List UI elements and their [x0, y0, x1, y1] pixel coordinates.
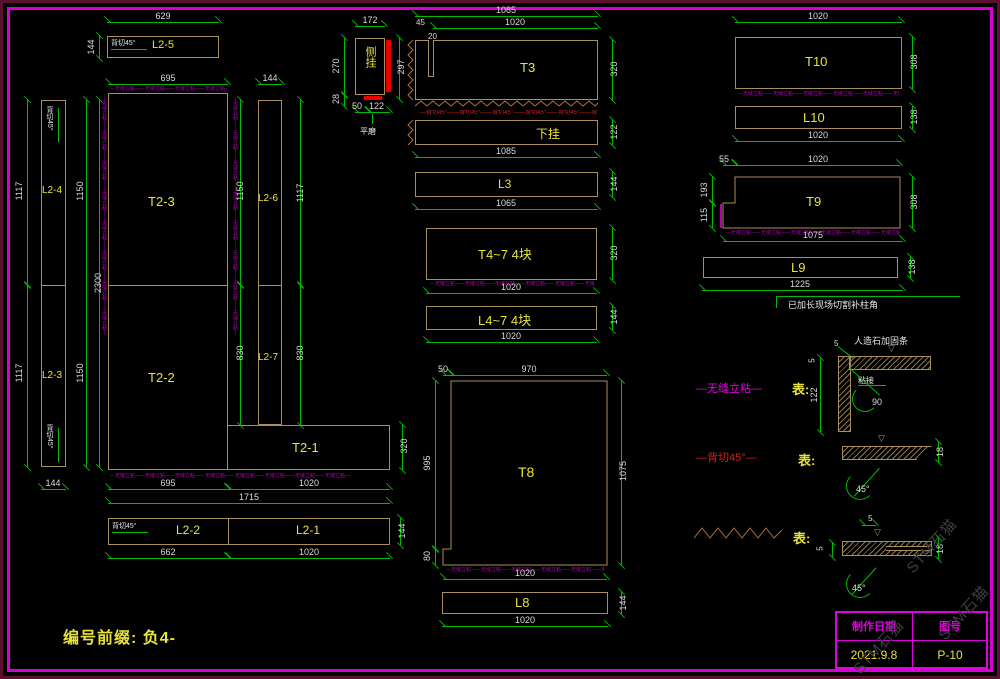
dim-28: 28: [331, 81, 341, 117]
panel-label: T4~7 4块: [478, 244, 532, 263]
dim-308: 308: [909, 44, 919, 80]
red-highlight-bar: [364, 96, 382, 100]
dim-line: [435, 381, 436, 549]
dim-45deg: 45°: [852, 583, 866, 593]
dim-5: 5: [808, 343, 817, 379]
reinforcement-strip-note: 人造石加固条: [854, 334, 908, 347]
panel-label: L2-3: [42, 370, 62, 381]
dim-45: 45: [416, 18, 425, 27]
red-highlight-bar: [386, 40, 391, 92]
panel-split: [108, 285, 228, 286]
leader-line: [112, 532, 148, 533]
dim-629: 629: [133, 11, 193, 21]
dim-1020: 1020: [279, 547, 339, 557]
dim-line: [41, 489, 66, 490]
panel-label: T8: [518, 464, 534, 480]
panel-label: 侧挂: [362, 46, 378, 90]
dim-90: 90: [872, 397, 882, 407]
panel-label: L3: [498, 177, 511, 191]
dim-144: 144: [86, 29, 96, 65]
dim-line: [344, 38, 345, 95]
dim-1150: 1150: [75, 173, 85, 209]
dim-5: 5: [816, 531, 825, 567]
dim-662: 662: [138, 547, 198, 557]
panel-split: [41, 285, 66, 286]
dim-270: 270: [331, 48, 341, 84]
panel-l2-6-l2-7: [258, 100, 282, 425]
leader-line: [776, 296, 960, 297]
dim-830: 830: [295, 335, 305, 371]
legend-means-label: 表:: [793, 528, 810, 547]
dim-1075: 1075: [783, 230, 843, 240]
dim-line: [27, 286, 28, 467]
dim-line: [735, 22, 902, 23]
dim-5: 5: [834, 339, 838, 348]
dim-line: [344, 95, 345, 106]
panel-label: L8: [515, 595, 529, 610]
dim-115: 115: [699, 197, 709, 233]
legend-means-label: 表:: [798, 450, 815, 469]
dim-line: [108, 503, 390, 504]
panel-label: L2-1: [296, 523, 320, 537]
dim-55: 55: [719, 154, 729, 164]
dim-line: [355, 112, 368, 113]
panel-label: L2-2: [176, 523, 200, 537]
dim-line: [443, 579, 607, 580]
dim-1020: 1020: [481, 282, 541, 292]
dim-122: 122: [809, 377, 819, 413]
dim-122: 122: [369, 101, 384, 111]
dim-144: 144: [38, 478, 68, 488]
panel-l2-4-l2-3: [41, 100, 66, 467]
dim-1020: 1020: [485, 17, 545, 27]
panel-label: T9: [806, 194, 821, 209]
dim-144: 144: [255, 73, 285, 83]
dim-144: 144: [609, 166, 619, 202]
dim-line: [228, 558, 390, 559]
panel-label: T2-3: [148, 194, 175, 209]
dim-122: 122: [609, 114, 619, 150]
dim-50: 50: [438, 364, 448, 374]
dim-line: [355, 26, 385, 27]
dim-1225: 1225: [770, 279, 830, 289]
dim-line: [107, 22, 219, 23]
dim-172: 172: [350, 15, 390, 25]
panel-label: L2-6: [258, 193, 278, 204]
dim-138: 138: [909, 99, 919, 135]
backcut-note: 背切45°: [112, 521, 137, 531]
panel-label: L10: [803, 110, 825, 125]
panel-t2-3-t2-2: [108, 93, 228, 470]
seamless-edge-marking: —无缝立粘——无缝立粘——无缝立粘——无缝立粘——无缝立粘——无缝立粘——无缝立…: [110, 86, 227, 93]
leader-line: [372, 114, 373, 124]
dim-144: 144: [618, 585, 628, 621]
dim-1020: 1020: [495, 568, 555, 578]
zigzag-edge: [415, 99, 598, 108]
dim-line: [702, 290, 903, 291]
dim-1020: 1020: [481, 331, 541, 341]
panel-label: T2-2: [148, 370, 175, 385]
dim-320: 320: [399, 428, 409, 464]
dim-1715: 1715: [219, 492, 279, 502]
dim-line: [820, 358, 821, 432]
triangle-marker: ▽: [874, 528, 881, 537]
triangle-marker: ▽: [888, 344, 895, 353]
dim-45deg: 45°: [856, 484, 870, 494]
dim-138: 138: [907, 249, 917, 285]
dim-line: [735, 165, 900, 166]
dim-line: [723, 165, 735, 166]
panel-label: L2-5: [152, 39, 174, 51]
dim-695: 695: [138, 478, 198, 488]
legend-backcut-tag: —背切45°—: [696, 449, 757, 465]
zigzag-legend-line: [694, 526, 782, 541]
cad-drawing: 629 144 背切45° L2-5 1117 1117 背切45° L2-4 …: [0, 0, 1000, 679]
dim-line: [415, 209, 598, 210]
panel-label: L4~7 4块: [478, 310, 531, 329]
dim-line: [832, 543, 833, 557]
panel-split: [228, 518, 229, 545]
dim-18: 18: [935, 434, 945, 470]
panel-label: 下挂: [536, 125, 560, 142]
dim-line: [712, 177, 713, 203]
dim-line: [415, 157, 598, 158]
dim-1150: 1150: [75, 355, 85, 391]
dim-line: [433, 28, 598, 29]
dim-line: [426, 342, 597, 343]
dim-line: [735, 141, 902, 142]
panel-slot: [428, 40, 434, 77]
dim-line: [86, 100, 87, 467]
seamless-edge-line: [720, 204, 722, 228]
backcut-note: 背切45°: [44, 424, 54, 464]
panel-label: L2-7: [258, 352, 278, 363]
zigzag-edge: [406, 120, 415, 145]
dim-1117: 1117: [295, 175, 305, 211]
dim-830: 830: [235, 335, 245, 371]
dim-line: [368, 112, 390, 113]
dim-1117: 1117: [14, 355, 24, 391]
dim-line: [258, 84, 282, 85]
dim-144: 144: [397, 513, 407, 549]
backcut-note: 背切45°: [44, 106, 54, 146]
dim-1150: 1150: [235, 173, 245, 209]
cut-on-site-note: 已加长现场切割补柱角: [788, 298, 878, 311]
legend-means-label: 表:: [792, 379, 809, 398]
panel-label: L2-4: [42, 185, 62, 196]
panel-t3: [415, 40, 598, 100]
triangle-marker: ▽: [878, 434, 885, 443]
dim-50: 50: [352, 101, 362, 111]
dim-320: 320: [609, 235, 619, 271]
zigzag-edge: [406, 40, 415, 100]
leader-line: [58, 428, 59, 462]
leader-line: [111, 49, 147, 50]
dim-1020: 1020: [279, 478, 339, 488]
dim-line: [228, 489, 390, 490]
title-block-drawing-number: P-10: [912, 640, 988, 669]
seamless-edge-marking: —无缝立粘——无缝立粘——无缝立粘——无缝立粘——无缝立粘——无缝立粘——无缝立…: [231, 95, 238, 421]
dim-line: [108, 84, 228, 85]
dim-line: [712, 203, 713, 228]
leader-line: [58, 108, 59, 142]
dim-320: 320: [609, 51, 619, 87]
panel-label: T3: [520, 60, 535, 75]
dim-1117: 1117: [14, 173, 24, 209]
dim-308: 308: [909, 184, 919, 220]
dim-line: [442, 626, 608, 627]
dim-line: [108, 558, 228, 559]
seamless-edge-marking: —无缝立粘——无缝立粘——无缝立粘——无缝立粘——无缝立粘——无缝立粘——无缝立…: [100, 95, 107, 467]
legend-seamless-tag: —无缝立粘—: [696, 380, 762, 396]
dim-1020: 1020: [495, 615, 555, 625]
numbering-prefix-note: 编号前缀: 负4-: [63, 624, 176, 648]
dim-line: [108, 489, 228, 490]
dim-line: [435, 549, 436, 565]
panel-label: L9: [791, 260, 805, 275]
corner-profile-horizontal: [849, 356, 931, 370]
dim-695: 695: [138, 73, 198, 83]
dim-1085: 1085: [476, 146, 536, 156]
panel-split: [258, 285, 282, 286]
flat-grind-note: 平磨: [360, 126, 376, 137]
leader-line: [776, 296, 777, 308]
dim-297: 297: [396, 49, 406, 85]
dim-line: [723, 241, 903, 242]
dim-1075: 1075: [618, 453, 628, 489]
dim-1065: 1065: [476, 198, 536, 208]
dim-970: 970: [499, 364, 559, 374]
panel-label: T10: [805, 54, 827, 69]
seamless-edge-marking: —无缝立粘——无缝立粘——无缝立粘——无缝立粘——无缝立粘——无缝立粘——无缝立…: [738, 91, 899, 98]
backcut-note: 背切45°: [111, 38, 136, 48]
dim-line: [99, 36, 100, 58]
panel-l2-2-l2-1: [108, 518, 390, 545]
dim-1020: 1020: [788, 130, 848, 140]
dim-995: 995: [422, 445, 432, 481]
panel-xiagua: [415, 120, 598, 145]
panel-label: T2-1: [292, 440, 319, 455]
backcut-edge-marking: —背切45°——背切45°——背切45°——背切45°——背切45°——背切45…: [420, 110, 598, 118]
dim-line: [426, 293, 597, 294]
dim-1085: 1085: [476, 5, 536, 15]
dim-line: [27, 100, 28, 284]
dim-1020: 1020: [788, 11, 848, 21]
dim-80: 80: [422, 538, 432, 574]
dim-1020: 1020: [788, 154, 848, 164]
dim-144: 144: [609, 299, 619, 335]
dim-line: [862, 525, 876, 526]
